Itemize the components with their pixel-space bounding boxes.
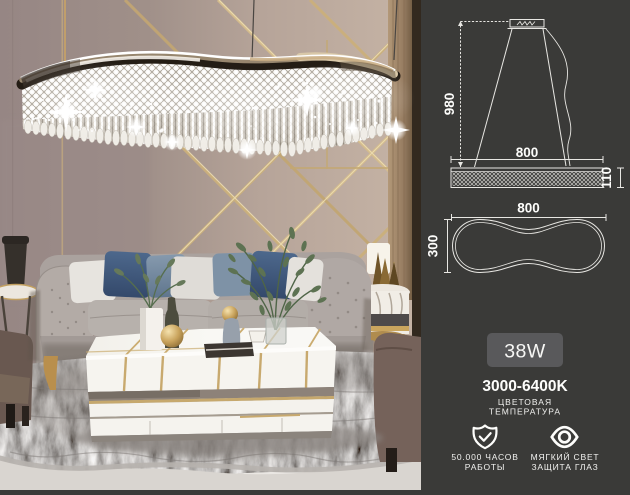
- svg-text:38W: 38W: [504, 341, 546, 363]
- svg-text:ЗАЩИТА ГЛАЗ: ЗАЩИТА ГЛАЗ: [531, 462, 598, 472]
- svg-text:РАБОТЫ: РАБОТЫ: [465, 462, 505, 472]
- svg-text:50.000 ЧАСОВ: 50.000 ЧАСОВ: [451, 452, 518, 462]
- svg-text:800: 800: [516, 145, 539, 160]
- svg-text:300: 300: [426, 235, 441, 258]
- svg-text:980: 980: [442, 93, 457, 116]
- svg-text:800: 800: [517, 201, 540, 216]
- svg-text:МЯГКИЙ СВЕТ: МЯГКИЙ СВЕТ: [531, 451, 600, 462]
- svg-text:3000-6400K: 3000-6400K: [482, 378, 568, 395]
- svg-text:ТЕМПЕРАТУРА: ТЕМПЕРАТУРА: [489, 407, 561, 417]
- svg-text:110: 110: [599, 167, 614, 189]
- svg-text:ЦВЕТОВАЯ: ЦВЕТОВАЯ: [498, 397, 552, 407]
